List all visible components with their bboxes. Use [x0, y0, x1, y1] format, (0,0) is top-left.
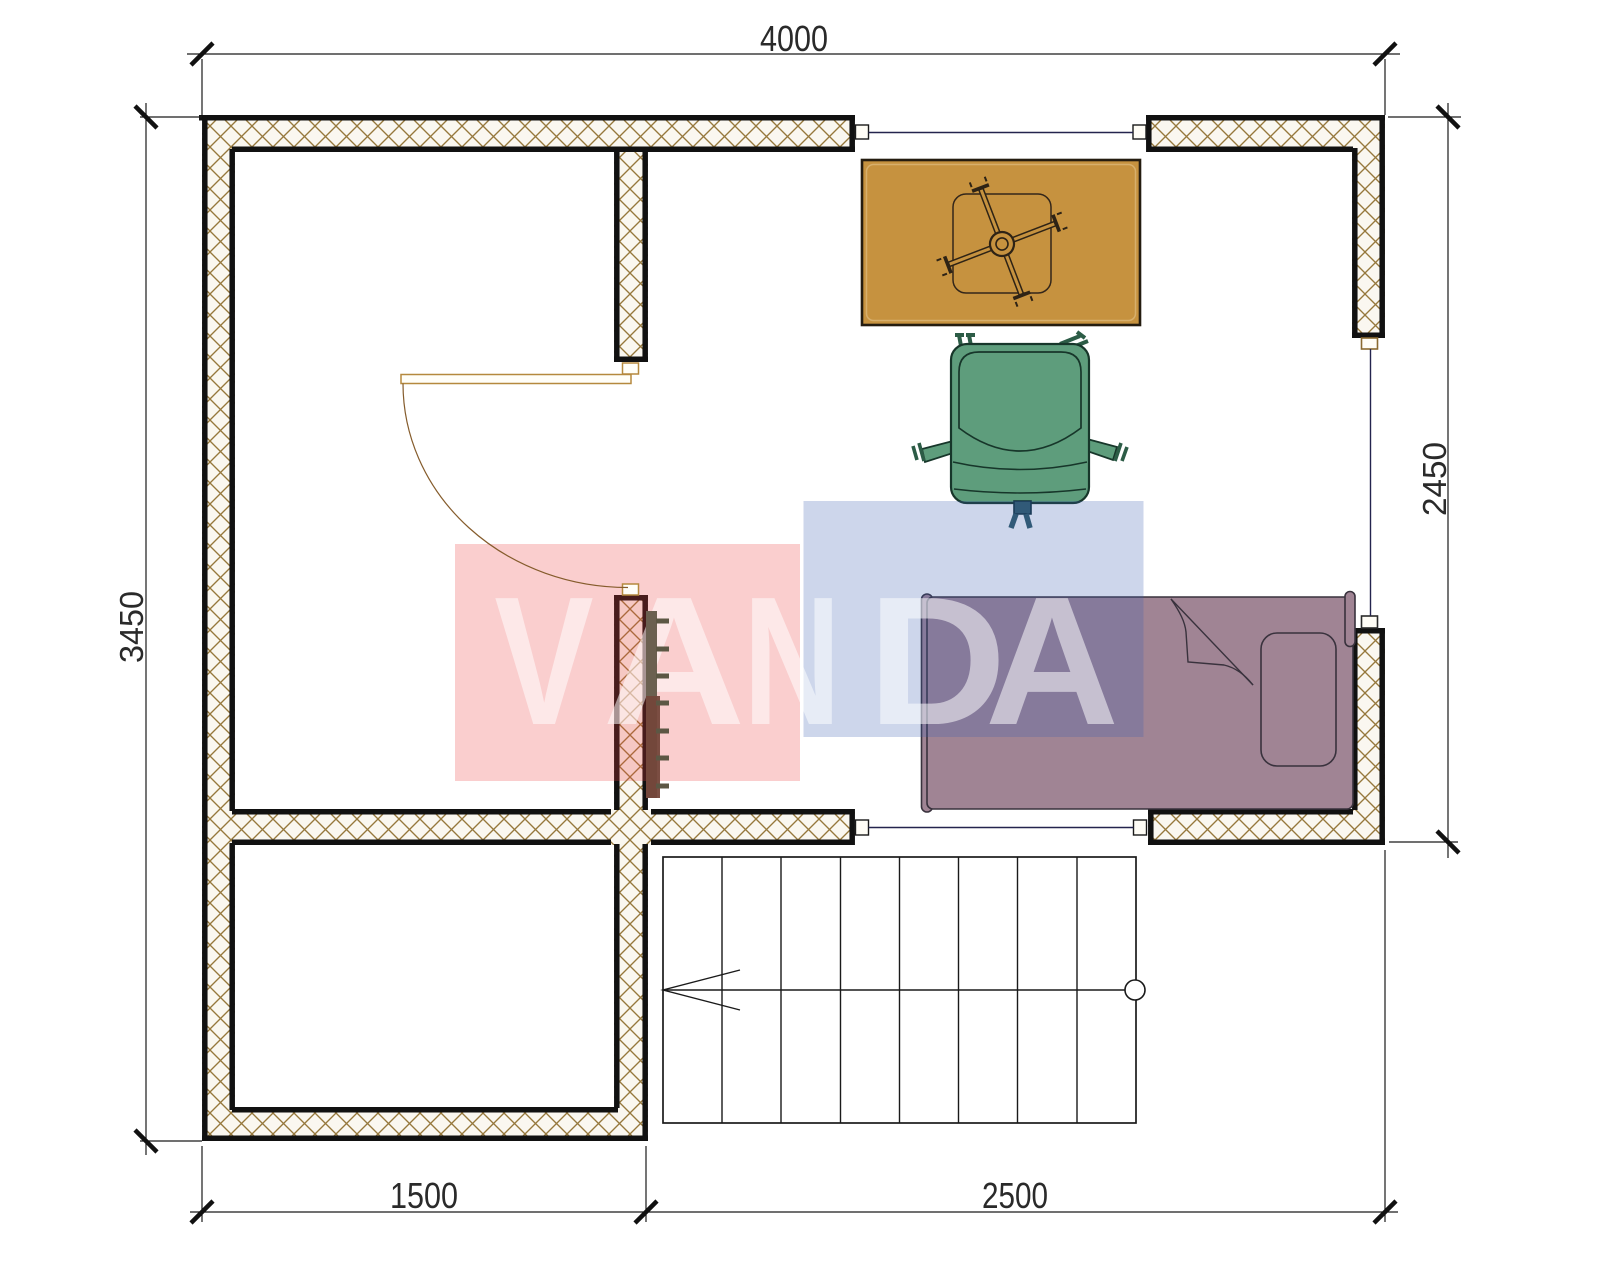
svg-text:N: N [743, 559, 841, 764]
svg-text:4000: 4000 [760, 18, 828, 59]
svg-text:2450: 2450 [1416, 442, 1453, 516]
svg-text:3450: 3450 [113, 591, 150, 663]
svg-text:A: A [985, 559, 1119, 763]
svg-text:1500: 1500 [390, 1175, 458, 1216]
svg-text:2500: 2500 [982, 1175, 1048, 1216]
svg-text:V: V [494, 559, 593, 763]
